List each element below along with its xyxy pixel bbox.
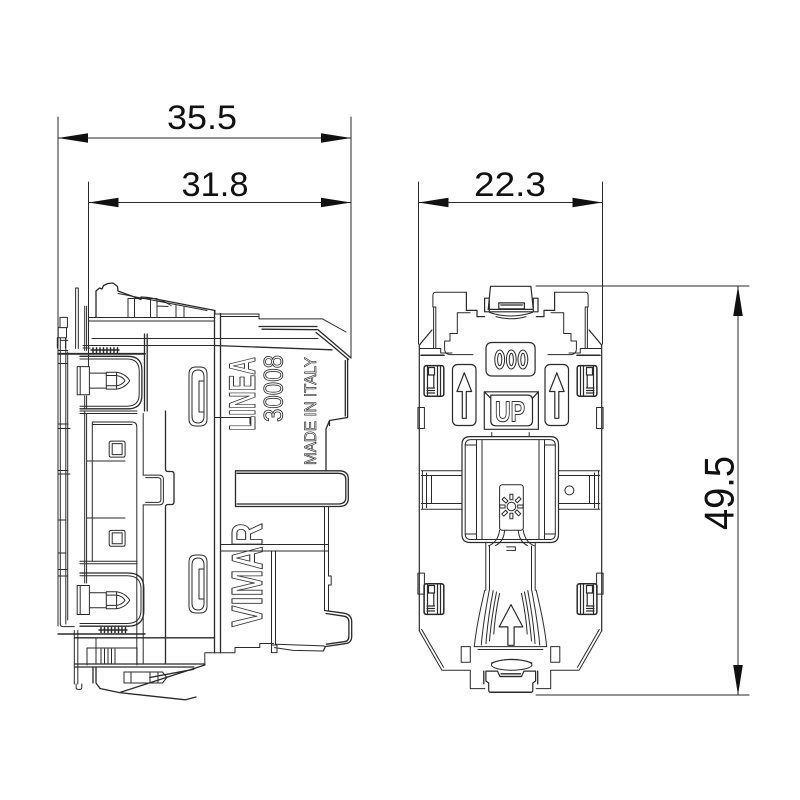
svg-text:35.5: 35.5 — [167, 99, 237, 137]
svg-text:31.8: 31.8 — [182, 166, 249, 204]
svg-text:30008: 30008 — [259, 355, 289, 422]
svg-text:VIMAR: VIMAR — [223, 523, 272, 627]
svg-text:MADE IN ITALY: MADE IN ITALY — [302, 357, 320, 465]
svg-text:UP: UP — [495, 396, 525, 428]
svg-text:22.3: 22.3 — [474, 166, 546, 204]
svg-text:LINEA: LINEA — [222, 357, 263, 431]
svg-text:49.5: 49.5 — [696, 456, 743, 530]
